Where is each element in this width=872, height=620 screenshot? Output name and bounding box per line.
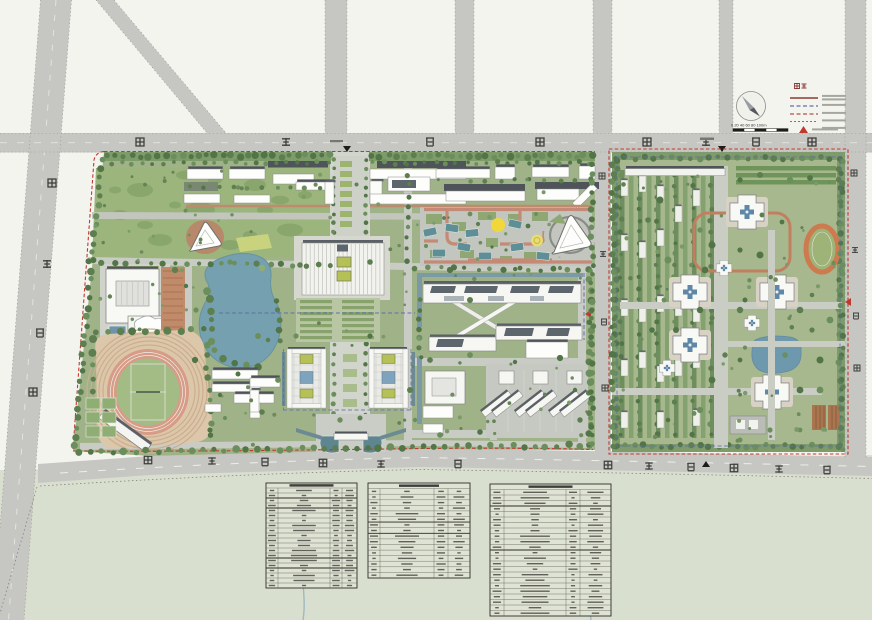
svg-text:0 20 40 60 80 100m: 0 20 40 60 80 100m [731,123,767,128]
